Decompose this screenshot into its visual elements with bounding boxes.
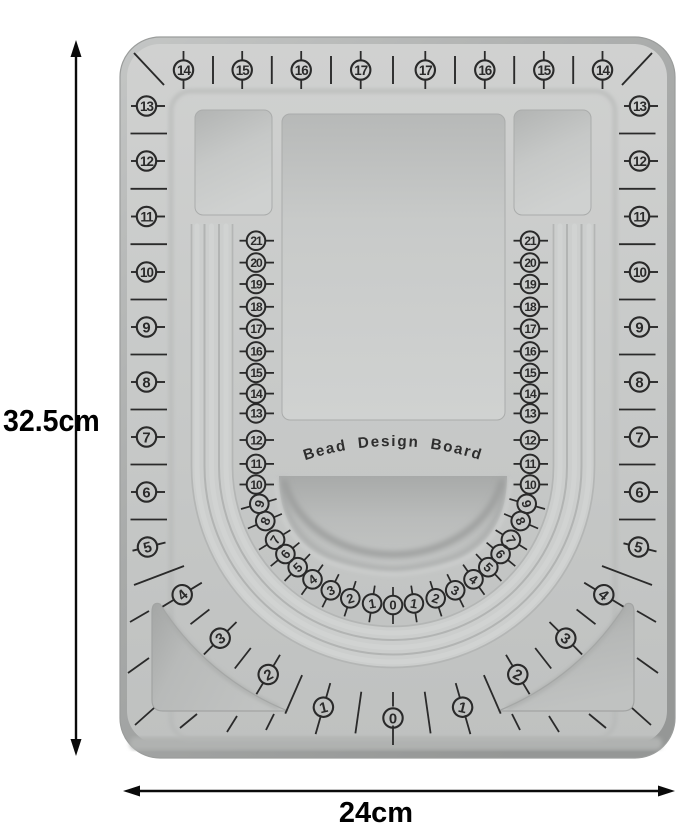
svg-text:8: 8 [142,375,150,391]
svg-text:21: 21 [524,234,537,248]
svg-text:6: 6 [142,485,150,501]
svg-text:10: 10 [140,265,153,280]
svg-text:0: 0 [389,598,396,613]
svg-text:17: 17 [524,322,537,336]
svg-text:21: 21 [250,234,263,248]
svg-text:9: 9 [635,320,643,336]
svg-text:7: 7 [635,430,643,446]
svg-text:18: 18 [250,300,263,314]
svg-text:17: 17 [250,322,263,336]
svg-text:15: 15 [236,63,250,78]
svg-text:17: 17 [354,63,367,78]
svg-text:10: 10 [250,478,263,492]
svg-text:16: 16 [295,63,308,78]
svg-text:24cm: 24cm [339,797,413,823]
svg-text:19: 19 [250,277,263,291]
svg-text:11: 11 [633,209,647,224]
svg-text:32.5cm: 32.5cm [3,404,100,438]
svg-text:11: 11 [140,209,154,224]
svg-text:18: 18 [524,300,537,314]
svg-text:16: 16 [478,63,491,78]
svg-text:13: 13 [140,99,153,114]
svg-text:12: 12 [524,433,537,447]
svg-text:17: 17 [419,63,432,78]
svg-text:19: 19 [524,277,537,291]
svg-text:8: 8 [635,375,643,391]
svg-text:14: 14 [177,63,191,78]
svg-text:15: 15 [537,63,551,78]
svg-text:14: 14 [524,387,537,401]
svg-text:14: 14 [250,387,263,401]
svg-text:15: 15 [524,366,537,380]
svg-text:10: 10 [524,478,537,492]
svg-text:16: 16 [250,345,263,359]
svg-text:10: 10 [633,265,646,280]
svg-text:12: 12 [140,154,153,169]
svg-text:20: 20 [524,256,537,270]
svg-text:16: 16 [524,345,537,359]
svg-text:7: 7 [142,430,150,446]
svg-text:20: 20 [250,256,263,270]
svg-text:13: 13 [633,99,646,114]
svg-text:9: 9 [142,320,150,336]
svg-text:11: 11 [525,457,537,471]
svg-text:0: 0 [389,711,397,727]
svg-text:12: 12 [633,154,646,169]
svg-text:6: 6 [635,485,643,501]
svg-text:15: 15 [250,366,263,380]
svg-text:13: 13 [250,407,263,421]
svg-text:13: 13 [524,407,537,421]
svg-text:14: 14 [596,63,610,78]
svg-text:12: 12 [250,433,263,447]
svg-text:11: 11 [251,457,263,471]
